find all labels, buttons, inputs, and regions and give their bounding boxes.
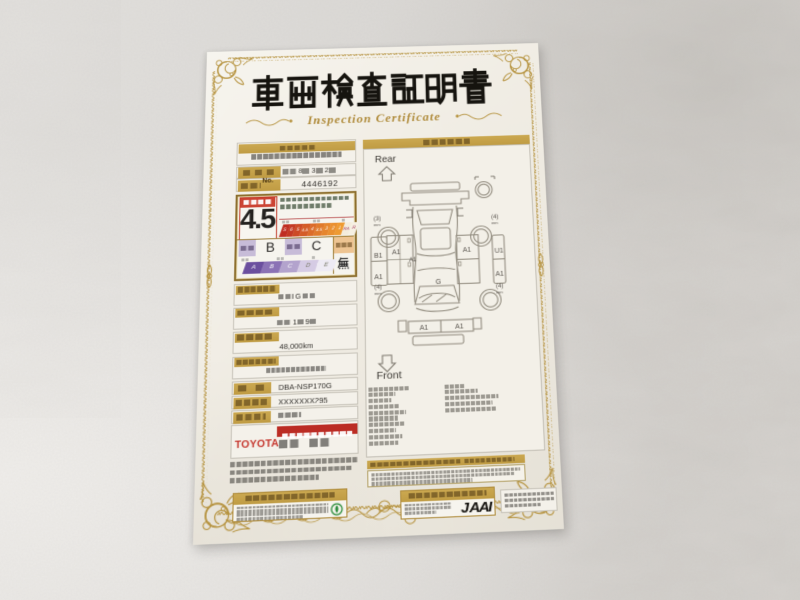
- svg-text:B1: B1: [374, 252, 383, 260]
- svg-text:(3): (3): [374, 216, 382, 222]
- svg-text:mm: mm: [374, 222, 381, 226]
- svg-text:U1: U1: [494, 247, 504, 255]
- svg-text:A1: A1: [374, 273, 383, 281]
- svg-text:mm: mm: [491, 220, 498, 224]
- svg-text:A1: A1: [409, 257, 416, 264]
- svg-text:G: G: [436, 278, 442, 286]
- svg-text:(4): (4): [491, 214, 499, 220]
- svg-text:A1: A1: [463, 246, 472, 254]
- svg-text:mm: mm: [496, 290, 503, 294]
- svg-text:A1: A1: [495, 270, 504, 278]
- svg-text:A1: A1: [392, 248, 401, 256]
- svg-text:A1: A1: [455, 323, 464, 331]
- svg-text:mm: mm: [374, 291, 381, 296]
- svg-text:Rear: Rear: [375, 153, 396, 164]
- svg-text:A1: A1: [420, 324, 429, 332]
- svg-text:(4): (4): [374, 284, 382, 291]
- svg-text:Front: Front: [376, 369, 402, 382]
- svg-text:(4): (4): [496, 283, 504, 290]
